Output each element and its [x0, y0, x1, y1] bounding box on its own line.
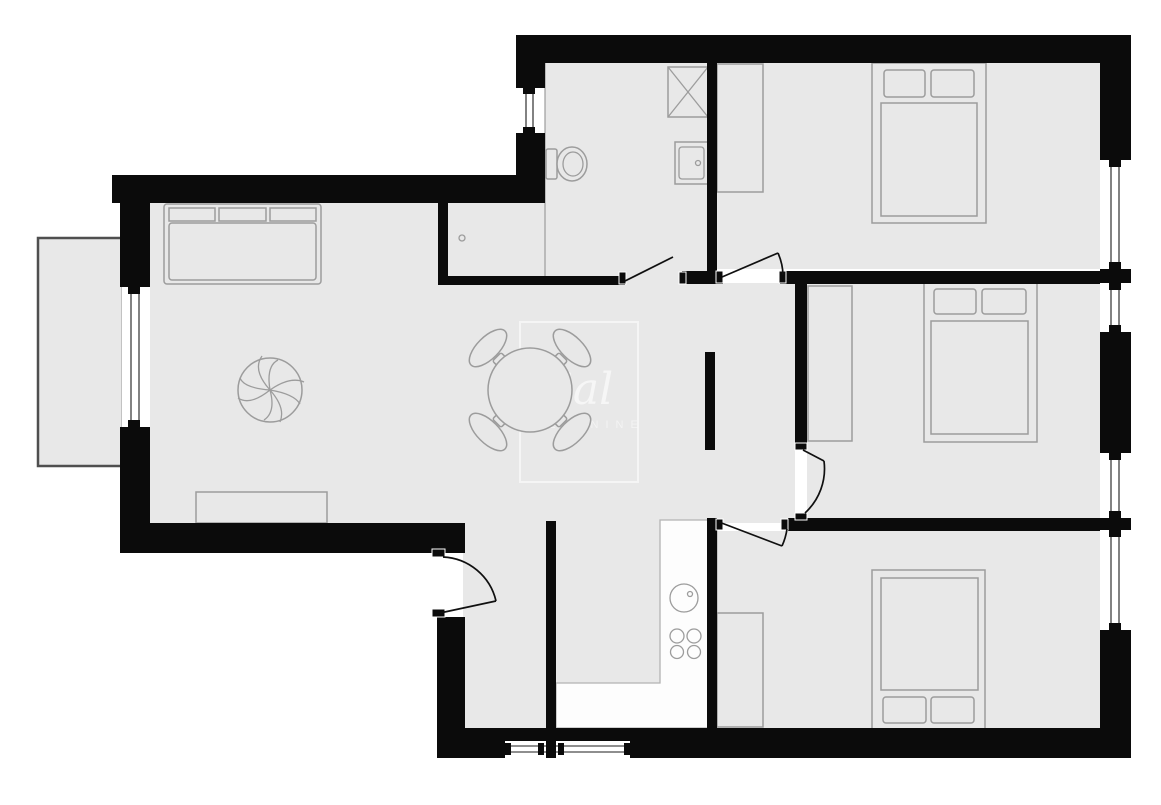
window-cap — [1109, 530, 1121, 537]
wall-bottom-left — [437, 742, 505, 758]
door-post — [716, 519, 723, 530]
bathroom-sink-icon — [675, 142, 708, 184]
door-post — [795, 513, 807, 520]
door-post — [619, 272, 626, 284]
window-icon — [518, 88, 543, 133]
window-cap — [624, 743, 630, 755]
toilet-tank — [546, 149, 557, 179]
wall-bedrooms-divider-2 — [788, 518, 1100, 531]
wall-nook-left — [438, 203, 448, 276]
window-icon — [1103, 530, 1128, 630]
double-bed-icon — [924, 283, 1037, 442]
dining-table-icon — [488, 348, 572, 432]
pillow-icon — [982, 289, 1026, 314]
wall-stub-through-window — [546, 740, 556, 758]
wall-left-upper — [120, 175, 150, 287]
door-post — [781, 519, 788, 530]
window-band — [505, 741, 630, 757]
wall-bathroom-bottom — [438, 276, 625, 285]
door-post — [679, 272, 686, 284]
wall-top — [516, 35, 1131, 63]
sofa-icon — [164, 204, 321, 284]
toilet-icon — [546, 147, 587, 181]
window-band — [518, 88, 543, 133]
wall-bath-left-upper — [516, 35, 545, 88]
window-band — [1103, 283, 1128, 332]
window-band — [1103, 453, 1128, 518]
door-post — [716, 271, 723, 283]
window-cap — [1109, 283, 1121, 290]
wall-right-b — [1100, 269, 1131, 283]
window-cap — [128, 420, 140, 427]
wall-kitchen-stub — [546, 521, 556, 758]
wall-kitchen-right — [707, 518, 717, 728]
window-cap — [1109, 623, 1121, 630]
double-bed-icon — [872, 63, 986, 223]
wall-bottom-upper — [437, 728, 1131, 742]
door-post — [795, 443, 807, 450]
pillow-icon — [931, 697, 974, 723]
window-cap — [558, 743, 564, 755]
window-cap — [1109, 453, 1121, 460]
window-band — [122, 287, 148, 427]
wall-right-d — [1100, 518, 1131, 530]
wall-hall-freestanding — [705, 352, 715, 450]
floor-hallway — [707, 283, 795, 523]
wardrobe-icon — [808, 286, 852, 441]
window-band — [1103, 530, 1128, 630]
floor-plan: Sal NEXTNINE — [0, 0, 1161, 805]
window-icon — [1103, 283, 1128, 332]
wall-bath-bedroom-divider — [707, 63, 717, 271]
window-icon — [1103, 453, 1128, 518]
window-icon — [1103, 160, 1128, 269]
sofa-cushion — [169, 208, 215, 221]
wall-bedroom-middle-left-upper — [795, 283, 807, 449]
pillow-icon — [931, 70, 974, 97]
window-cap — [505, 743, 511, 755]
wall-right-a — [1100, 35, 1131, 160]
sofa-cushion — [219, 208, 266, 221]
wall-living-bottom — [120, 523, 465, 553]
window-cap — [523, 127, 535, 133]
wall-right-c — [1100, 332, 1131, 453]
window-band — [1103, 160, 1128, 269]
bed-mattress — [881, 103, 977, 216]
window-cap — [1109, 325, 1121, 332]
bed-mattress — [931, 321, 1028, 434]
window-cap — [1109, 160, 1121, 167]
floor-plan-canvas: Sal NEXTNINE — [0, 0, 1161, 805]
pillow-icon — [883, 697, 926, 723]
window-cap — [538, 743, 544, 755]
pillow-icon — [884, 70, 925, 97]
window-icon — [122, 287, 148, 427]
window-cap — [523, 88, 535, 94]
sideboard-icon — [196, 492, 327, 523]
balcony — [38, 238, 123, 466]
shower-icon — [668, 67, 708, 117]
door-post — [432, 549, 445, 557]
wall-living-top — [112, 175, 545, 203]
wall-bath-left-lower — [516, 133, 545, 177]
window-cap — [1109, 511, 1121, 518]
double-bed-icon — [872, 570, 985, 731]
wall-bedrooms-divider-1 — [780, 271, 1100, 284]
bed-mattress — [881, 578, 978, 690]
wardrobe-icon — [717, 64, 763, 192]
window-cap — [1109, 262, 1121, 269]
wardrobe-icon — [717, 613, 763, 727]
sofa-seat — [169, 223, 316, 280]
window-icon — [505, 740, 630, 758]
sofa-cushion — [270, 208, 316, 221]
window-cap — [128, 287, 140, 294]
wall-bottom-right — [630, 742, 1131, 758]
pillow-icon — [934, 289, 976, 314]
